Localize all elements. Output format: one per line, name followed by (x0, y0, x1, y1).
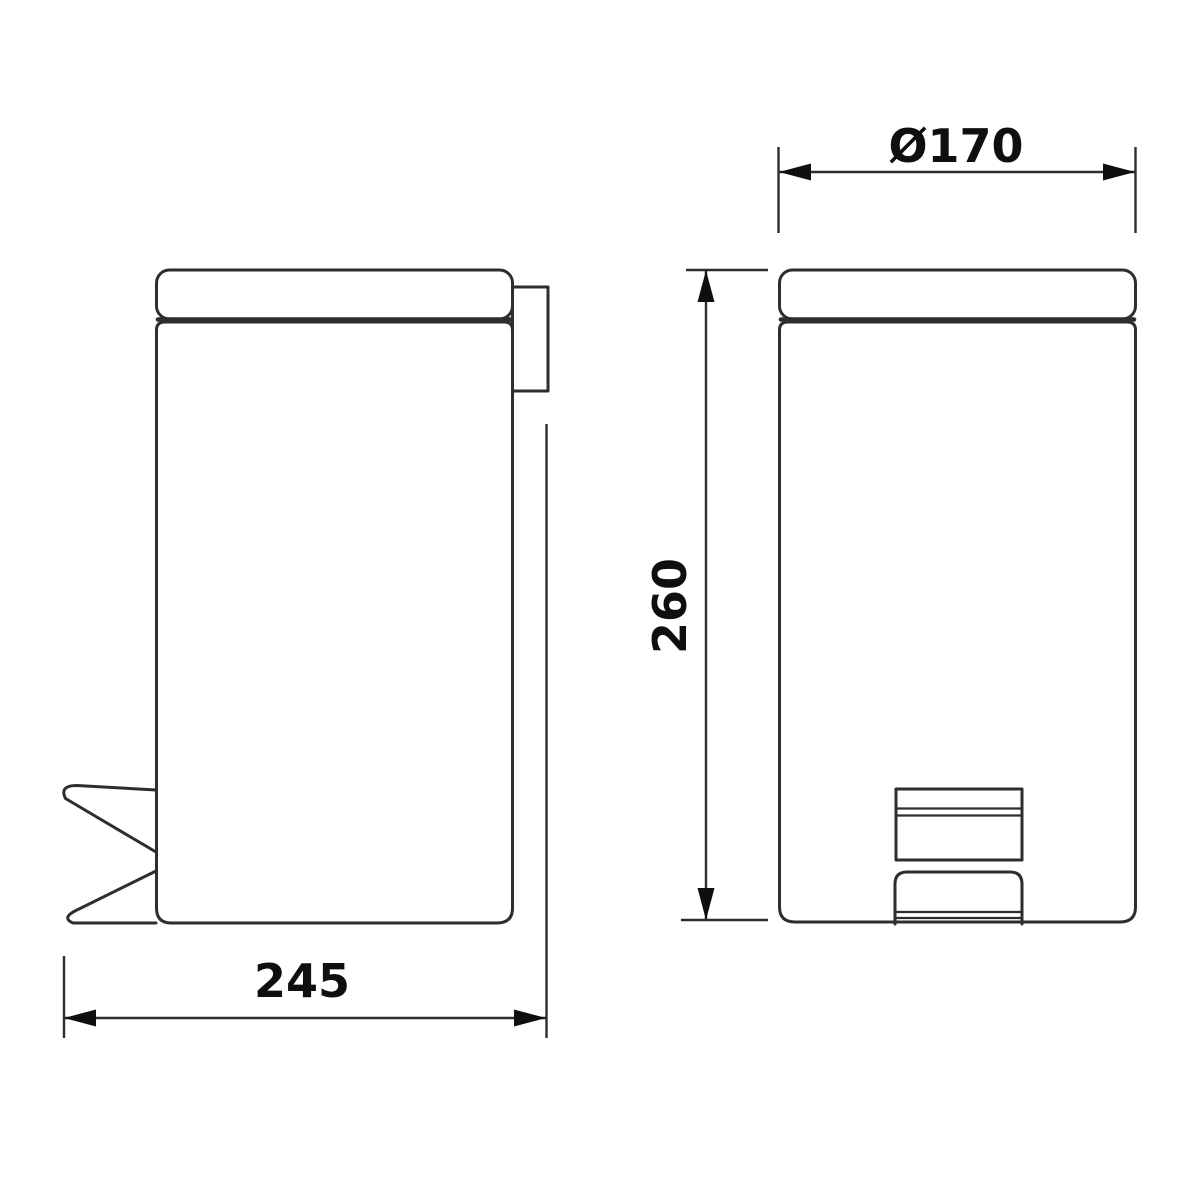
side-view-pedal-top-plate (64, 786, 156, 853)
height-dimension-arrow-top-icon (698, 271, 715, 303)
side-view (64, 270, 548, 923)
height-dimension: 260 (643, 270, 768, 920)
front-view-lid (780, 270, 1136, 319)
side-view-lid-hinge (513, 287, 549, 391)
side-view-lid (157, 270, 513, 319)
height-dimension-label: 260 (643, 558, 697, 654)
side-view-pedal-base (68, 871, 156, 923)
depth-dimension-arrow-left-icon (64, 1010, 96, 1027)
front-view (780, 270, 1136, 924)
diameter-dimension-label: Ø170 (888, 119, 1023, 173)
height-dimension-arrow-bottom-icon (698, 888, 715, 920)
front-view-pedal-plate (895, 872, 1022, 924)
diameter-dimension-arrow-left-icon (779, 164, 811, 181)
depth-dimension: 245 (64, 424, 547, 1038)
drawing-stage: 245 Ø170 260 (0, 0, 1200, 1200)
diameter-dimension-arrow-right-icon (1103, 164, 1135, 181)
front-view-pedal-bracket (896, 789, 1022, 860)
depth-dimension-arrow-right-icon (514, 1010, 546, 1027)
front-view-body (780, 322, 1136, 922)
diameter-dimension: Ø170 (779, 119, 1136, 233)
pedal-bin-technical-drawing: 245 Ø170 260 (0, 0, 1200, 1200)
depth-dimension-label: 245 (254, 954, 350, 1008)
side-view-body (157, 322, 513, 923)
